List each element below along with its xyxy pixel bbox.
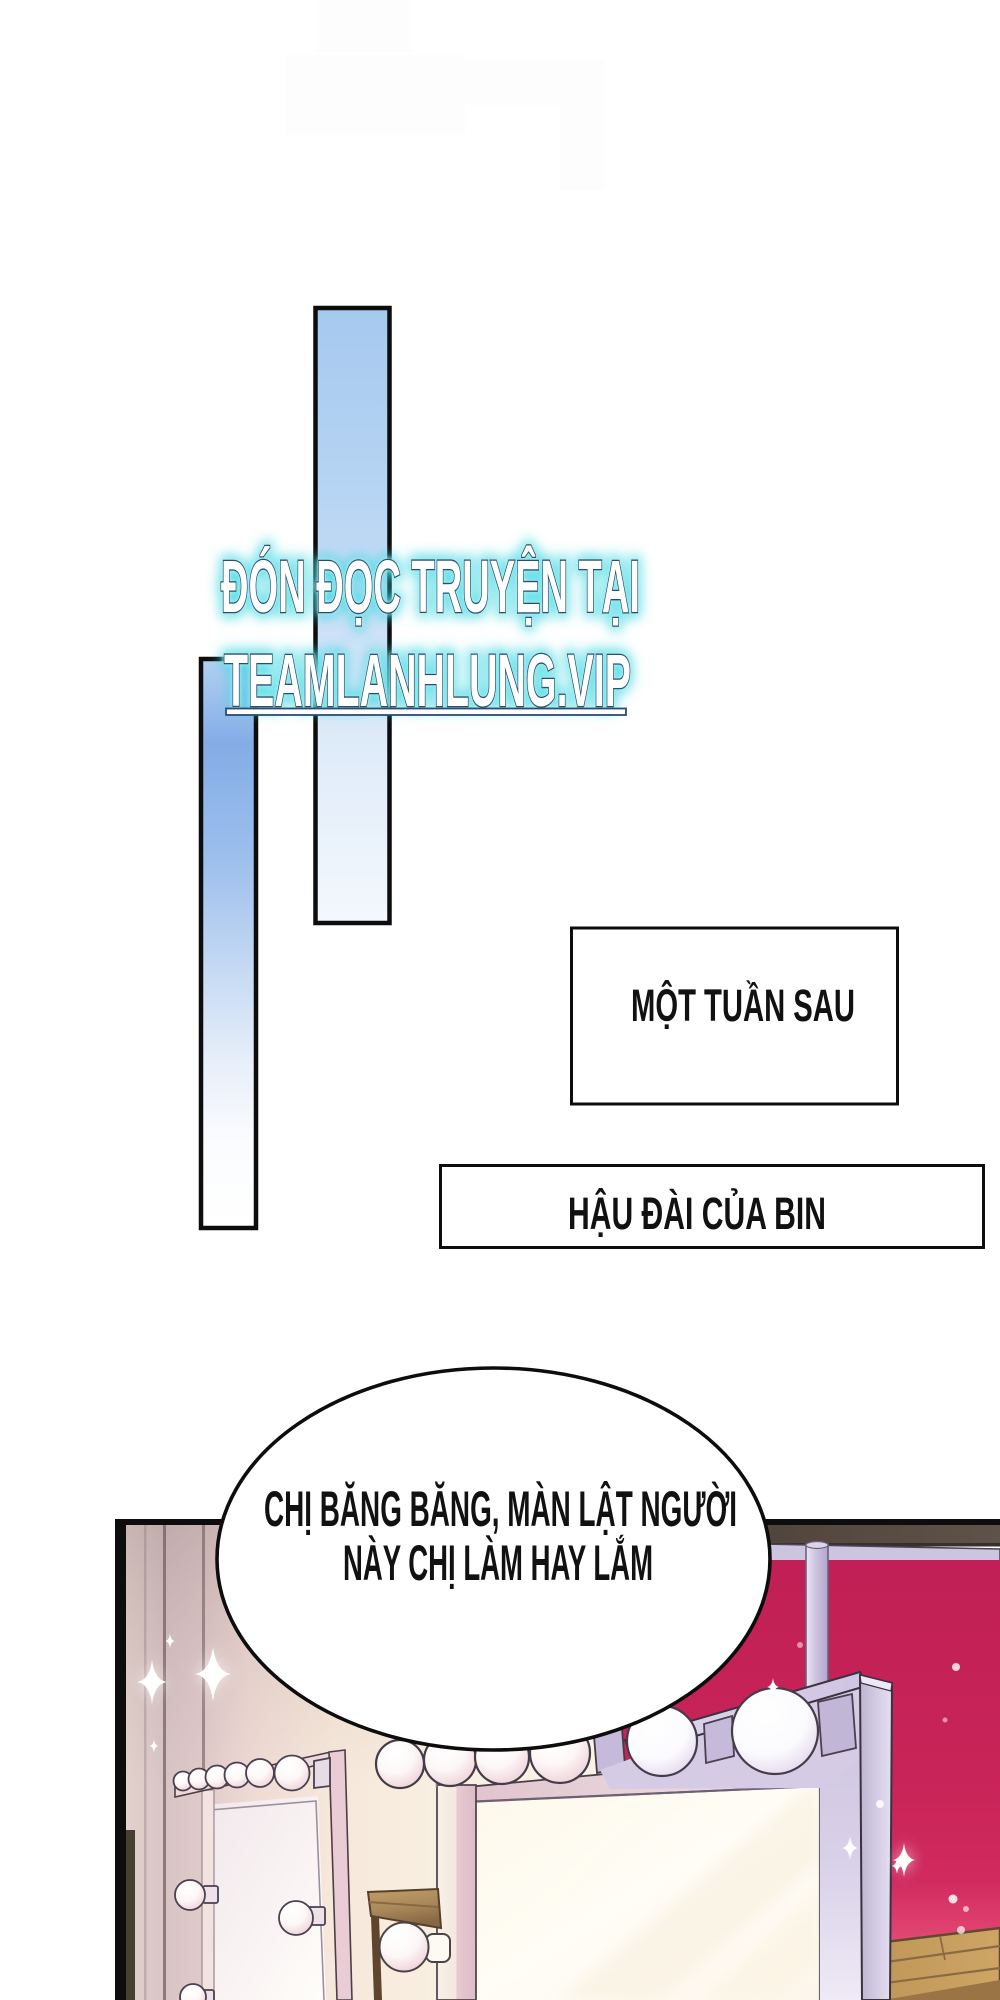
svg-text:CHỊ BĂNG BĂNG, MÀN LẬT NGƯỜI: CHỊ BĂNG BĂNG, MÀN LẬT NGƯỜI (264, 1481, 737, 1537)
svg-text:HẬU ĐÀI CỦA BIN: HẬU ĐÀI CỦA BIN (568, 1188, 826, 1239)
svg-text:ĐÓN ĐỌC TRUYỆN TẠI: ĐÓN ĐỌC TRUYỆN TẠI (221, 545, 640, 628)
svg-text:NÀY CHỊ LÀM HAY LẮM: NÀY CHỊ LÀM HAY LẮM (343, 1535, 653, 1591)
svg-text:MỘT TUẦN SAU: MỘT TUẦN SAU (631, 980, 855, 1031)
